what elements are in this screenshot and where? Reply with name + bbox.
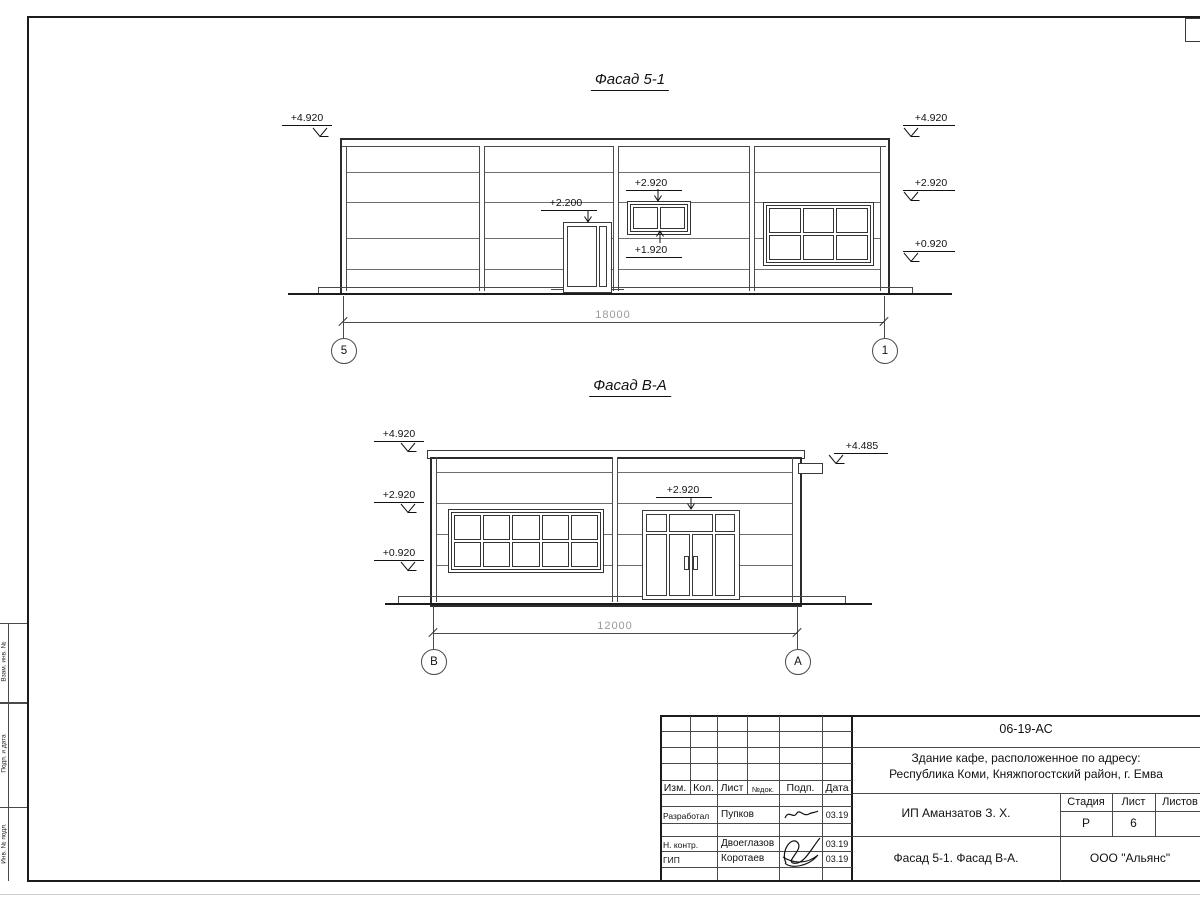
entrance-portal (642, 510, 740, 600)
plinth-edge (845, 596, 846, 603)
window-pane (483, 542, 510, 567)
wall-post (612, 457, 618, 602)
elevation-mark: +2.920 (660, 484, 706, 496)
tb-line (1060, 811, 1200, 812)
window-pane (769, 208, 801, 233)
tb-line (717, 716, 718, 880)
window-pane (836, 235, 868, 260)
elevation-mark: +2.200 (543, 197, 589, 209)
window-pane (633, 207, 658, 229)
elevation-mark: +4.920 (908, 112, 954, 124)
elevation-mark: +0.920 (376, 547, 422, 559)
titleblock-border (660, 715, 662, 881)
sidelight (715, 534, 735, 596)
window-large (763, 202, 874, 266)
side-strip-line (8, 623, 9, 881)
elevation-mark: +4.485 (838, 440, 886, 452)
tb-name: Коротаев (721, 853, 764, 864)
elevation-flag-icon (903, 252, 920, 263)
window-pane (660, 207, 685, 229)
elevation-mark: +4.920 (284, 112, 330, 124)
elevation-flag-icon (400, 442, 417, 453)
transom-pane (669, 514, 713, 532)
elevation-mark: +2.920 (628, 177, 674, 189)
transom-pane (646, 514, 667, 532)
side-strip-divider (0, 702, 27, 704)
wall-post (749, 146, 755, 291)
elevation-shelf (903, 125, 955, 126)
side-strip-label: Инв. № подл. (1, 816, 8, 872)
tb-header-ndoc: №док. (747, 785, 779, 794)
tb-header-izm: Изм. (660, 782, 690, 794)
axis-label: 1 (882, 345, 888, 357)
tb-line (662, 823, 852, 824)
tb-date: 03.19 (822, 839, 852, 849)
plinth-line (318, 287, 912, 288)
corner-post (792, 457, 793, 602)
tb-line (853, 747, 1200, 748)
axis-bubble: А (785, 649, 811, 675)
door-leaf (567, 226, 597, 287)
tb-line (662, 763, 852, 764)
side-strip-divider (0, 807, 27, 808)
axis-bubble: 1 (872, 338, 898, 364)
down-arrow-icon (685, 497, 697, 510)
dimension-line (343, 322, 884, 323)
side-strip-divider (0, 623, 27, 624)
window-pane (454, 515, 481, 540)
tb-name: Двоеглазов (721, 838, 774, 849)
window-pane (483, 515, 510, 540)
side-strip-label: Подп. и дата (1, 726, 8, 782)
roof-pipe (798, 463, 823, 474)
extension-line (884, 296, 885, 338)
tb-client: ИП Аманзатов З. Х. (852, 806, 1060, 820)
window-pane (454, 542, 481, 567)
extension-line (433, 606, 434, 649)
tb-role: ГИП (663, 855, 680, 865)
frame-left-line (27, 16, 29, 882)
dimension-value: 18000 (583, 309, 643, 321)
ground-line (385, 603, 872, 605)
sidelight (646, 534, 667, 596)
tb-role: Н. контр. (663, 840, 698, 850)
tb-line (662, 780, 852, 781)
axis-label: В (430, 656, 438, 668)
transom-pane (715, 514, 735, 532)
dimension-value: 12000 (585, 620, 645, 632)
elevation-shelf (656, 497, 712, 498)
door (563, 222, 612, 293)
tb-stage-label: Стадия (1060, 796, 1112, 808)
facade-b-a-title: Фасад В-А (589, 377, 671, 397)
tb-doc-number: 06-19-АС (852, 722, 1200, 736)
tb-organization: ООО "Альянс" (1060, 851, 1200, 865)
corner-post (346, 146, 347, 291)
corner-post (436, 457, 437, 602)
tb-stage-value: Р (1060, 816, 1112, 830)
tb-sheet-value: 6 (1112, 816, 1155, 830)
tb-line (853, 836, 1200, 837)
drawing-sheet: Взам. инв. № Подп. и дата Инв. № подл. Ф… (0, 0, 1200, 900)
axis-bubble: В (421, 649, 447, 675)
tb-sheet-name: Фасад 5-1. Фасад В-А. (852, 851, 1060, 865)
window-wide (448, 509, 604, 573)
tb-line (662, 731, 852, 732)
axis-label: А (794, 656, 802, 668)
tb-name: Пупков (721, 809, 754, 820)
tb-date: 03.19 (822, 810, 852, 820)
window-pane (571, 515, 598, 540)
tb-header-list: Лист (717, 782, 747, 794)
side-strip-label: Взам. инв. № (1, 634, 8, 690)
tb-header-kol: Кол. (690, 782, 717, 794)
frame-top-line (27, 16, 1200, 18)
elevation-mark: +2.920 (376, 489, 422, 501)
door-side-panel (599, 226, 607, 287)
paper-edge (0, 894, 1200, 895)
plinth-line (398, 596, 845, 597)
elevation-flag-icon (903, 191, 920, 202)
elevation-flag-icon (400, 503, 417, 514)
elevation-flag-icon (903, 127, 920, 138)
tb-project-line2: Республика Коми, Княжпогостский район, г… (852, 767, 1200, 781)
tb-line (853, 793, 1200, 794)
signature (781, 807, 821, 822)
door-handle (693, 556, 698, 570)
tb-line (662, 747, 852, 748)
tb-date: 03.19 (822, 854, 852, 864)
tb-project-line1: Здание кафе, расположенное по адресу: (852, 751, 1200, 765)
elevation-flag-icon (828, 454, 845, 465)
extension-line (797, 606, 798, 649)
elevation-flag-icon (400, 561, 417, 572)
elevation-shelf (282, 125, 332, 126)
elevation-mark: +2.920 (908, 177, 954, 189)
tb-header-data: Дата (822, 782, 852, 794)
corner-post (880, 146, 881, 291)
elevation-mark: +4.920 (376, 428, 422, 440)
down-arrow-icon (582, 210, 594, 223)
up-arrow-icon (654, 230, 666, 243)
signature (778, 833, 824, 869)
window-pane (542, 542, 569, 567)
window-pane (803, 235, 835, 260)
window-pane (836, 208, 868, 233)
wall-post (613, 146, 619, 291)
down-arrow-icon (652, 189, 664, 202)
facade-5-1-title: Фасад 5-1 (591, 71, 669, 91)
window-pane (769, 235, 801, 260)
axis-bubble: 5 (331, 338, 357, 364)
wall-post (479, 146, 485, 291)
tb-line (662, 794, 852, 795)
extension-line (343, 296, 344, 338)
tb-header-podp: Подп. (779, 782, 822, 794)
elevation-mark: +0.920 (908, 238, 954, 250)
axis-label: 5 (341, 345, 347, 357)
frame-bottom-line (27, 880, 1200, 882)
corner-stamp-box (1185, 18, 1200, 42)
tb-sheets-label: Листов (1155, 796, 1200, 808)
titleblock-border (660, 715, 1200, 717)
window-pane (803, 208, 835, 233)
ground-line (288, 293, 952, 295)
plinth-edge (398, 596, 399, 603)
window-pane (542, 515, 569, 540)
tb-line (747, 716, 748, 794)
door-handle (684, 556, 689, 570)
elevation-mark: +1.920 (628, 244, 674, 256)
window-pane (571, 542, 598, 567)
elevation-flag-icon (312, 127, 329, 138)
tb-sheet-label: Лист (1112, 796, 1155, 808)
dimension-line (433, 633, 797, 634)
window-pane (512, 515, 539, 540)
tb-line (662, 806, 852, 807)
tb-role: Разработал (663, 811, 709, 821)
window-pane (512, 542, 539, 567)
elevation-shelf (626, 257, 682, 258)
